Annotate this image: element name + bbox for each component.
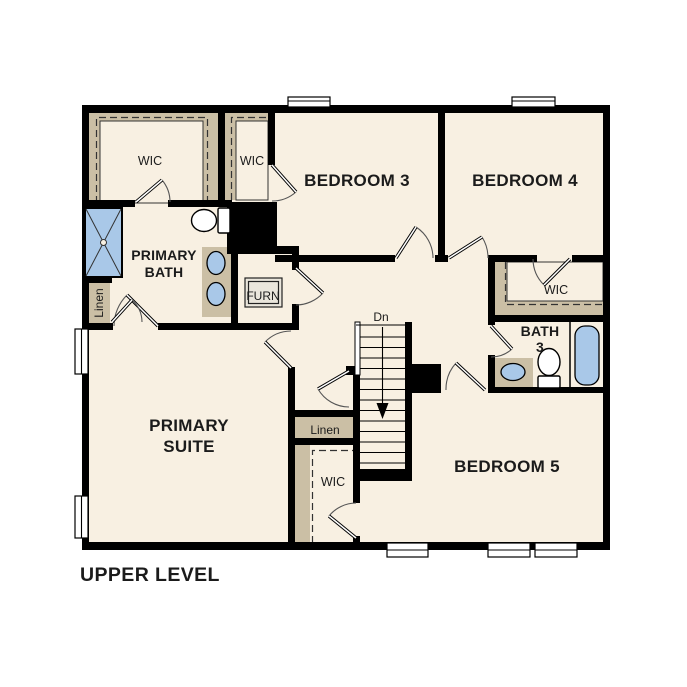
label-bedroom5: BEDROOM 5 [454, 457, 560, 476]
sink [207, 283, 225, 306]
label-bath3-line2: 3 [536, 339, 544, 355]
wall-segment [405, 322, 412, 469]
window-bottom-3 [535, 543, 577, 557]
wall-segment [603, 105, 610, 550]
wall-segment [353, 412, 360, 503]
window-top-bedroom3 [288, 97, 330, 107]
wall-segment [288, 367, 295, 543]
wall-segment [353, 469, 412, 481]
toilet-tank [538, 376, 560, 388]
wall-segment [288, 410, 360, 417]
label-bedroom4: BEDROOM 4 [472, 171, 578, 190]
wall-segment [86, 323, 113, 330]
label-wic-bedroom5: WIC [321, 475, 345, 489]
label-linen-bath: Linen [92, 288, 106, 317]
wall-segment [268, 113, 275, 165]
label-linen-hall: Linen [310, 423, 339, 437]
wall-segment [488, 315, 603, 322]
floor-plan-drawing: WIC WIC BEDROOM 3 BEDROOM 4 WIC BATH 3 B… [0, 0, 687, 687]
wall-segment [353, 375, 360, 412]
shower [85, 208, 122, 277]
label-stairs-dn: Dn [373, 310, 388, 324]
wall-segment [435, 255, 448, 262]
plan-title: UPPER LEVEL [80, 564, 220, 586]
toilet-tank [218, 208, 230, 233]
window-top-bedroom4 [512, 97, 555, 107]
wall-segment [488, 255, 537, 262]
chase [227, 202, 277, 254]
wall-segment [82, 542, 610, 550]
sink [207, 252, 225, 275]
label-furnace: FURN [246, 289, 279, 303]
label-bath3-line1: BATH [521, 323, 560, 339]
floor-plan-canvas: WIC WIC BEDROOM 3 BEDROOM 4 WIC BATH 3 B… [0, 0, 687, 687]
label-primary-suite-line2: SUITE [163, 437, 215, 456]
label-wic-primary: WIC [138, 154, 162, 168]
label-primary-bath-line1: PRIMARY [131, 247, 197, 263]
label-wic-hall: WIC [240, 154, 264, 168]
wall-segment [218, 113, 225, 203]
toilet-bowl [192, 210, 217, 232]
window-left-1 [75, 329, 88, 374]
label-wic-bedroom4: WIC [544, 283, 568, 297]
window-left-2 [75, 496, 88, 538]
primary-toilet [192, 208, 231, 233]
wall-segment [89, 200, 135, 207]
label-primary-bath-line2: BATH [145, 264, 184, 280]
chase [407, 364, 441, 393]
stair-rail [355, 322, 360, 375]
wall-segment [277, 246, 299, 254]
shower-drain [101, 240, 107, 246]
window-bottom-1 [387, 543, 428, 557]
wall-segment [438, 113, 445, 262]
window-bottom-2 [488, 543, 530, 557]
bath3-sink [501, 364, 525, 381]
wall-segment [168, 200, 232, 207]
wall-segment [231, 247, 238, 330]
wall-segment [275, 255, 395, 262]
label-bedroom3: BEDROOM 3 [304, 171, 410, 190]
wall-segment [288, 438, 360, 445]
label-primary-suite-line1: PRIMARY [149, 416, 229, 435]
wall-segment [572, 255, 603, 262]
wall-segment [158, 323, 299, 330]
